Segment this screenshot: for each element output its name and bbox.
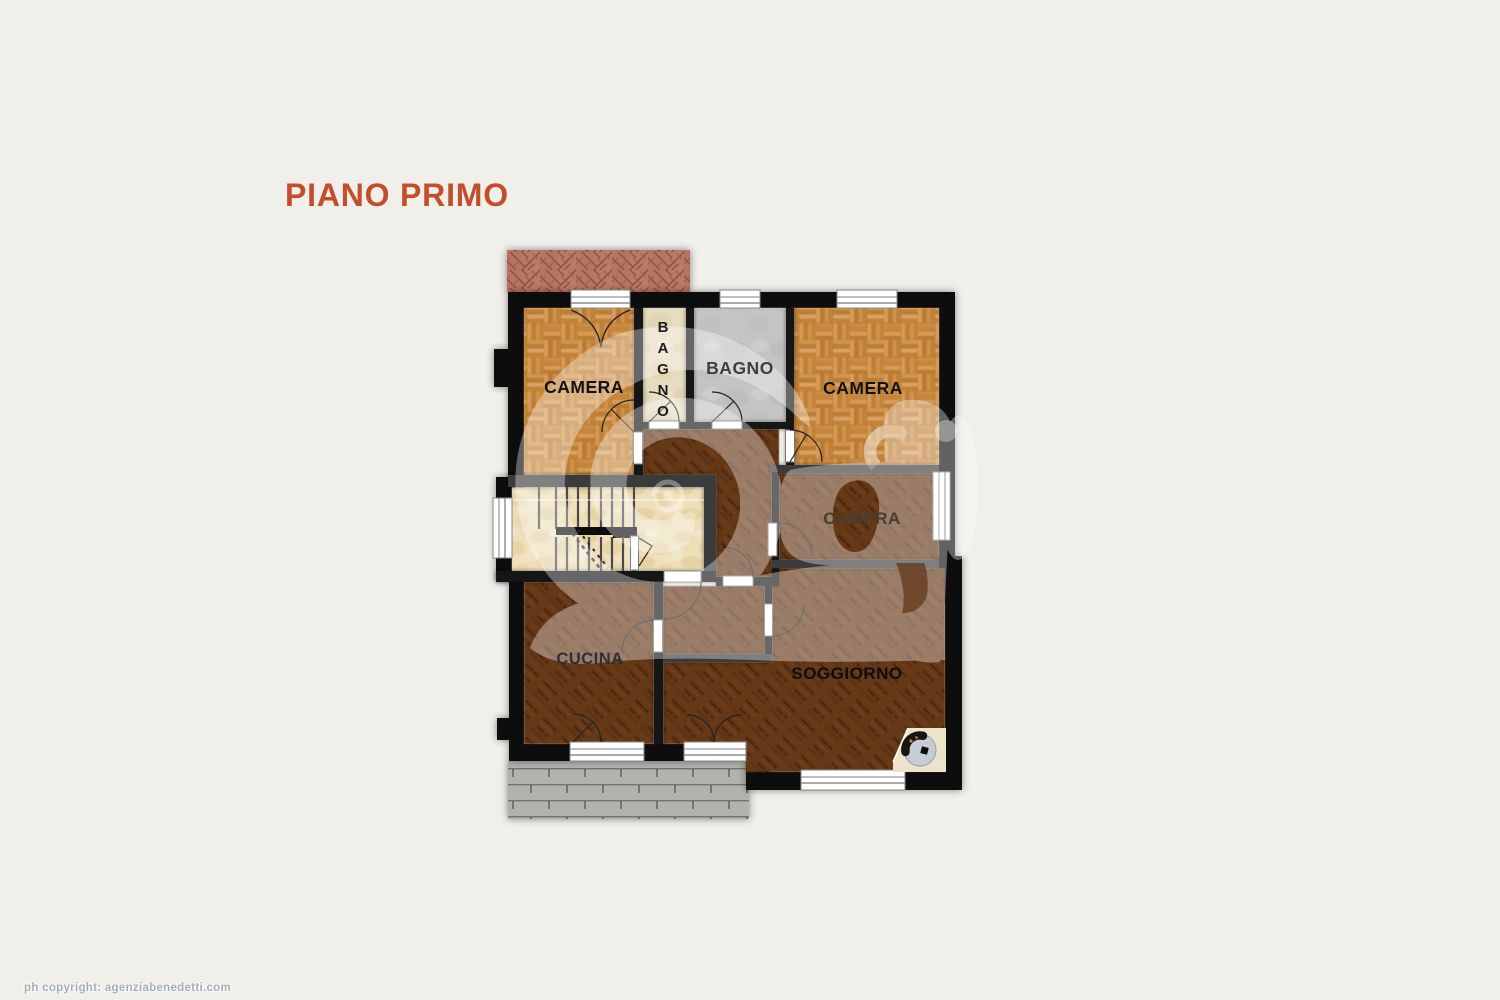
- svg-text:SOGGIORNO: SOGGIORNO: [791, 664, 902, 683]
- svg-text:CUCINA: CUCINA: [556, 650, 623, 668]
- svg-text:CAMERA: CAMERA: [544, 377, 624, 397]
- svg-text:PIANO PRIMO: PIANO PRIMO: [285, 177, 509, 213]
- svg-text:CAMERA: CAMERA: [823, 509, 901, 528]
- svg-text:BAGNO: BAGNO: [706, 358, 774, 378]
- svg-text:CAMERA: CAMERA: [823, 378, 903, 398]
- svg-text:BAGNO: BAGNO: [657, 319, 669, 420]
